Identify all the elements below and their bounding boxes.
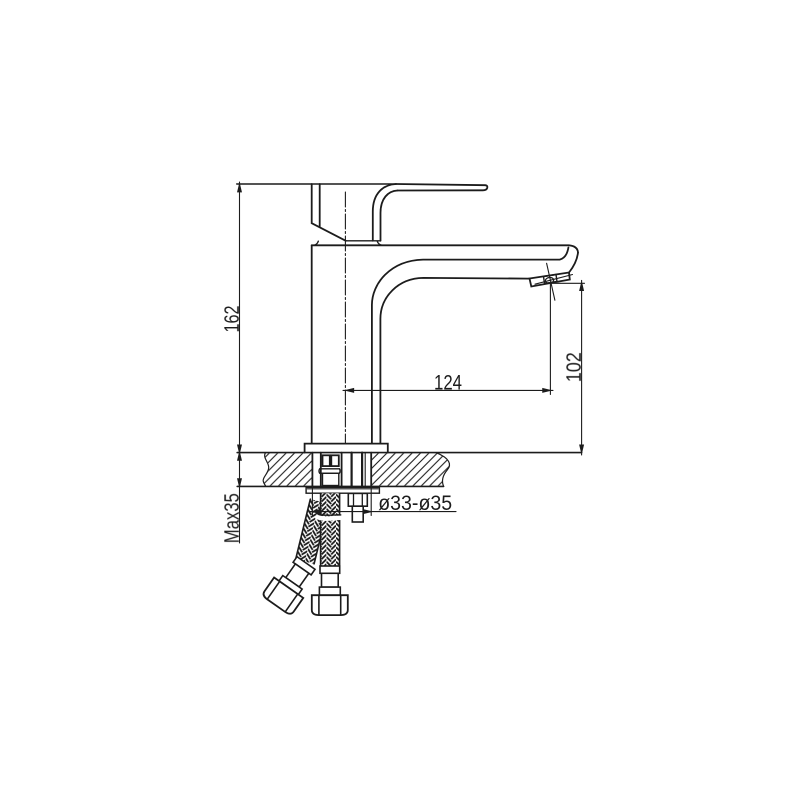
svg-text:124: 124	[434, 370, 462, 394]
svg-text:Max35: Max35	[220, 493, 244, 543]
svg-text:ø33-ø35: ø33-ø35	[378, 491, 452, 515]
svg-text:102: 102	[562, 352, 586, 382]
svg-text:162: 162	[220, 306, 244, 333]
